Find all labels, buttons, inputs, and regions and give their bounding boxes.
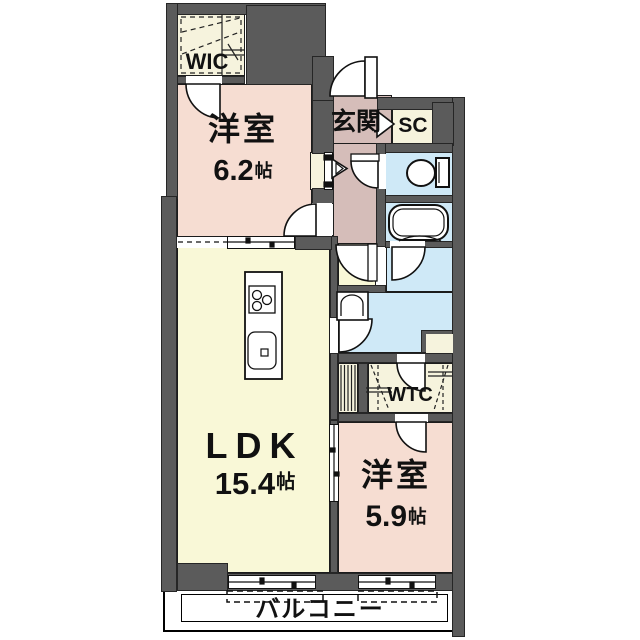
- ldk-pocket: [338, 243, 376, 287]
- wall: [385, 143, 453, 153]
- pipe-space: [426, 334, 453, 353]
- door-opening: [312, 203, 332, 236]
- wic-label: WIC: [176, 50, 238, 74]
- toilet-room: [385, 150, 453, 198]
- floor-plan: WIC 洋室 6.2帖 玄関 SC WTC LDK 15.4帖 洋室 5.9帖 …: [0, 0, 640, 640]
- wall: [177, 563, 228, 591]
- size-value: 6.2: [213, 157, 253, 186]
- wall: [166, 3, 178, 199]
- bedroom-top-name: 洋室: [181, 110, 305, 148]
- wtc-label: WTC: [383, 383, 437, 407]
- washroom-upper: [386, 247, 453, 292]
- window-bedroom: [358, 575, 436, 589]
- wall: [358, 363, 368, 413]
- wall: [337, 285, 386, 293]
- shoe-closet-label: SC: [393, 112, 433, 138]
- wall: [330, 353, 338, 420]
- door-opening: [377, 154, 386, 189]
- wall: [385, 195, 453, 203]
- door-opening: [395, 414, 428, 422]
- door-opening: [186, 76, 222, 84]
- wall: [432, 102, 454, 146]
- wall: [161, 196, 177, 592]
- sliding-door: [329, 424, 339, 502]
- door-opening: [397, 354, 425, 363]
- wall: [452, 97, 465, 637]
- folding-door: [324, 152, 333, 190]
- door-opening: [390, 241, 425, 248]
- bathroom: [385, 202, 453, 242]
- wall: [312, 188, 334, 204]
- size-value: 5.9: [365, 502, 407, 532]
- wall: [295, 236, 332, 250]
- door-opening: [330, 318, 338, 353]
- wall: [312, 56, 334, 104]
- size-unit: 帖: [408, 508, 427, 527]
- balcony-label: バルコニー: [238, 597, 402, 623]
- bedroom-bottom-size: 5.9帖: [350, 498, 442, 536]
- entrance-label: 玄関: [327, 108, 385, 136]
- bedroom-top-size: 6.2帖: [181, 154, 305, 188]
- size-unit: 帖: [255, 162, 273, 180]
- window-ldk: [228, 575, 316, 589]
- bedroom-bottom-name: 洋室: [352, 456, 440, 494]
- size-unit: 帖: [276, 473, 295, 492]
- wall: [338, 353, 453, 363]
- size-value: 15.4: [215, 468, 275, 499]
- ldk-name: LDK: [192, 425, 317, 467]
- ldk-size: 15.4帖: [190, 464, 320, 502]
- ldk-room: [177, 245, 330, 573]
- sliding-partition: [227, 236, 295, 249]
- hallway: [333, 143, 378, 247]
- shelf-unit: [338, 363, 358, 413]
- partition-open: [177, 237, 227, 248]
